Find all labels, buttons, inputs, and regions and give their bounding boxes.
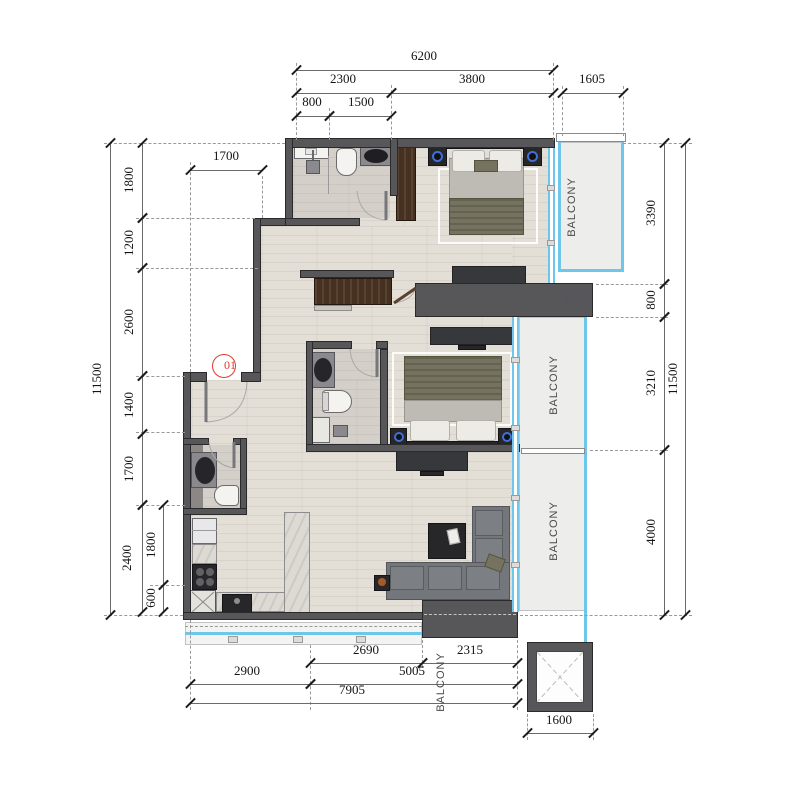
dimension-label: 1400 [121, 392, 137, 418]
dimension-line [391, 93, 553, 94]
dimension-label: 2315 [457, 642, 483, 658]
dimension-label: 1800 [121, 167, 137, 193]
dimension-label: 2690 [353, 642, 379, 658]
dimension-label: 1600 [546, 712, 572, 728]
dimension-line [527, 733, 593, 734]
dimension-line [685, 143, 686, 615]
dimension-label: 4000 [643, 519, 659, 545]
dimension-line [142, 143, 143, 218]
dimension-line [329, 116, 391, 117]
dimension-label: 3800 [459, 71, 485, 87]
dimension-label: 11500 [89, 363, 105, 395]
dimension-label: 11500 [665, 363, 681, 395]
dimension-label: 2400 [119, 545, 135, 571]
dimension-label: 3210 [643, 370, 659, 396]
dimension-line [142, 268, 143, 376]
dimension-label: 600 [143, 588, 159, 608]
dimension-label: 6200 [411, 48, 437, 64]
dimension-label: 800 [302, 94, 322, 110]
dimension-label: 3390 [643, 200, 659, 226]
dimension-label: 800 [643, 290, 659, 310]
dimension-line [296, 116, 329, 117]
page: { "unit_marker": { "label": "01" }, "col… [0, 0, 800, 800]
dimension-label: 1605 [579, 71, 605, 87]
dimension-line [562, 93, 623, 94]
dimension-label: 2300 [330, 71, 356, 87]
dimension-line [142, 376, 143, 434]
dimension-label: 1700 [213, 148, 239, 164]
balcony-label: BALCONY [548, 501, 560, 561]
dimension-line [190, 170, 262, 171]
balcony-label: BALCONY [566, 177, 578, 237]
dimension-line [664, 450, 665, 615]
dimension-label: 1700 [121, 456, 137, 482]
dimension-line [664, 143, 665, 284]
dimension-label: 2600 [121, 309, 137, 335]
dimension-line [142, 434, 143, 505]
dimension-line [163, 585, 164, 612]
dimension-label: 1500 [348, 94, 374, 110]
dimension-label: 1800 [143, 532, 159, 558]
dimension-label: 7905 [339, 682, 365, 698]
dimension-line [142, 218, 143, 268]
dimension-line [664, 284, 665, 317]
balcony-label: BALCONY [435, 652, 447, 712]
dimension-label: 5005 [399, 663, 425, 679]
dimensions-layer: 6200230038001605800150017001150018001200… [0, 0, 800, 800]
dimension-line [110, 143, 111, 615]
dimension-label: 2900 [234, 663, 260, 679]
dimension-line [190, 684, 310, 685]
floor-plan-canvas: 01 6200230038001605800150017001150018001… [0, 0, 800, 800]
dimension-label: 1200 [121, 230, 137, 256]
dimension-line [190, 703, 517, 704]
dimension-line [163, 505, 164, 585]
balcony-label: BALCONY [548, 355, 560, 415]
